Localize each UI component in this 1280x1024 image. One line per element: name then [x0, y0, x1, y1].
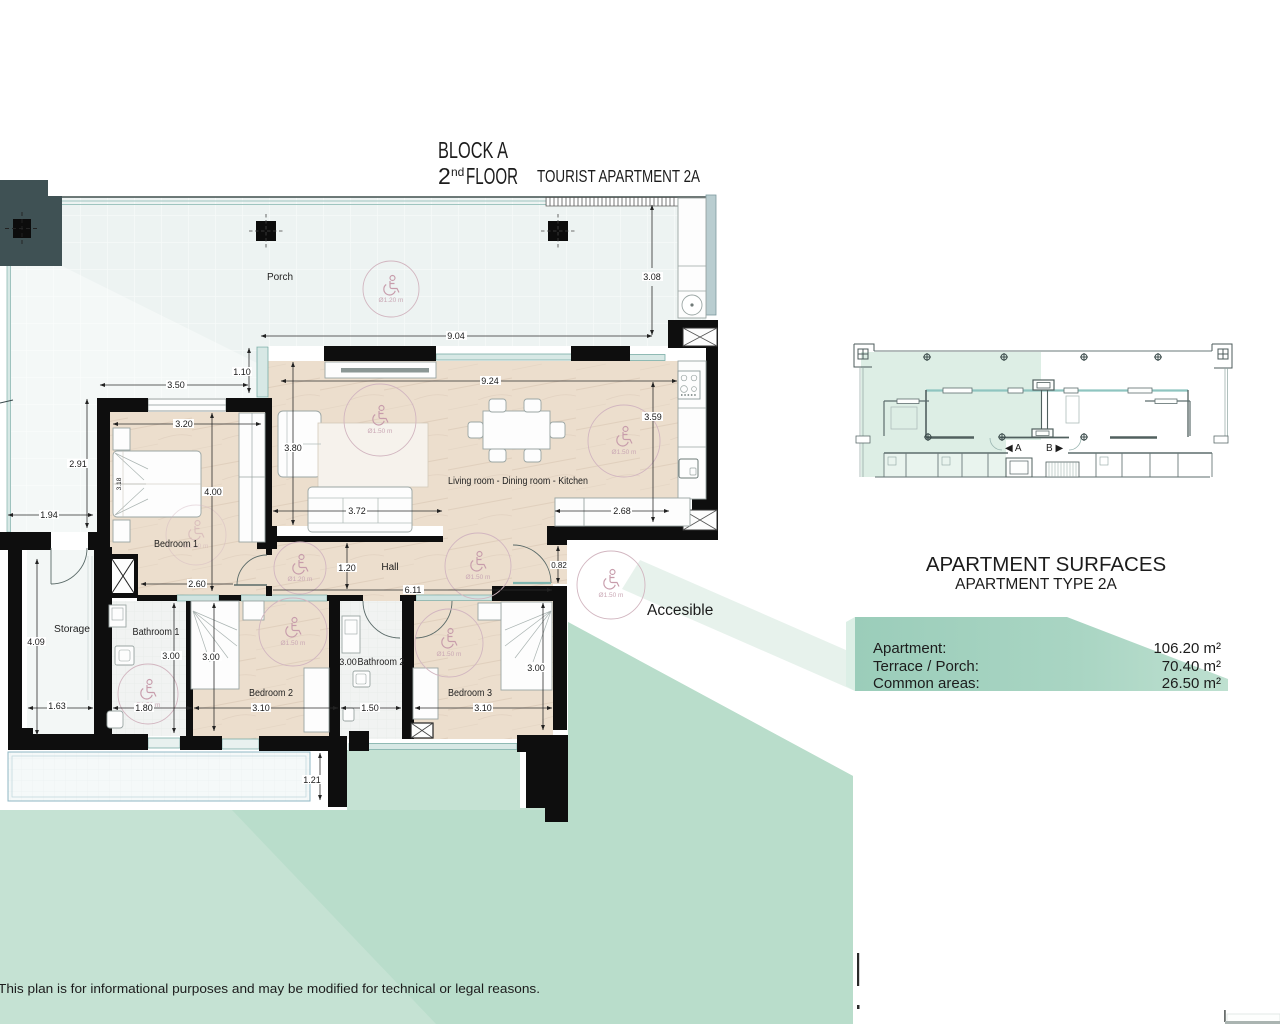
- svg-text:3.08: 3.08: [643, 272, 661, 282]
- svg-text:Bedroom 2: Bedroom 2: [249, 688, 293, 699]
- svg-text:1.20: 1.20: [338, 563, 356, 573]
- svg-text:B ▶: B ▶: [1046, 443, 1063, 454]
- svg-text:1.63: 1.63: [48, 701, 66, 711]
- svg-text:Storage: Storage: [54, 624, 90, 635]
- svg-text:3.18: 3.18: [116, 477, 123, 490]
- svg-text:1.94: 1.94: [40, 510, 58, 520]
- svg-text:Ø1.50 m: Ø1.50 m: [281, 640, 306, 647]
- svg-text:3.00: 3.00: [527, 663, 545, 673]
- svg-text:Accesible: Accesible: [647, 602, 713, 619]
- svg-text:3.10: 3.10: [252, 703, 270, 713]
- svg-text:APARTMENT TYPE 2A: APARTMENT TYPE 2A: [955, 576, 1117, 593]
- svg-text:1.10: 1.10: [233, 367, 251, 377]
- svg-text:9.04: 9.04: [447, 331, 465, 341]
- svg-text:Bathroom 2: Bathroom 2: [358, 657, 405, 668]
- svg-text:3.72: 3.72: [348, 506, 366, 516]
- svg-text:26.50 m²: 26.50 m²: [1162, 675, 1221, 692]
- svg-text:3.50: 3.50: [167, 380, 185, 390]
- svg-text:This plan is for informational: This plan is for informational purposes …: [0, 981, 540, 996]
- svg-text:1.80: 1.80: [135, 703, 153, 713]
- svg-text:70.40 m²: 70.40 m²: [1162, 658, 1221, 675]
- svg-text:Living room - Dining room - Ki: Living room - Dining room - Kitchen: [448, 476, 588, 487]
- svg-text:1.21: 1.21: [303, 775, 321, 785]
- svg-text:Ø1.50 m: Ø1.50 m: [368, 428, 393, 435]
- svg-text:◀ A: ◀ A: [1005, 443, 1022, 454]
- svg-text:2: 2: [438, 163, 451, 189]
- svg-text:3.20: 3.20: [175, 419, 193, 429]
- svg-text:Apartment:: Apartment:: [873, 640, 946, 657]
- svg-text:6.11: 6.11: [405, 585, 422, 595]
- svg-text:9.24: 9.24: [481, 376, 499, 386]
- svg-text:Ø1.50 m: Ø1.50 m: [437, 651, 462, 658]
- svg-text:Terrace / Porch:: Terrace / Porch:: [873, 658, 979, 675]
- svg-text:2.68: 2.68: [613, 506, 631, 516]
- svg-text:3.00: 3.00: [202, 652, 220, 662]
- svg-text:3.10: 3.10: [474, 703, 492, 713]
- svg-text:3.80: 3.80: [284, 443, 302, 453]
- svg-text:Bedroom 1: Bedroom 1: [154, 539, 198, 550]
- svg-text:FLOOR: FLOOR: [466, 163, 518, 189]
- svg-text:Common areas:: Common areas:: [873, 675, 980, 692]
- svg-text:Bedroom 3: Bedroom 3: [448, 688, 492, 699]
- svg-text:Ø1.20 m: Ø1.20 m: [379, 297, 404, 304]
- svg-text:Ø1.50 m: Ø1.50 m: [466, 574, 491, 581]
- svg-text:3.59: 3.59: [644, 412, 662, 422]
- svg-text:Porch: Porch: [267, 272, 293, 283]
- svg-text:Ø1.50 m: Ø1.50 m: [612, 449, 637, 456]
- svg-text:3.00: 3.00: [339, 657, 357, 667]
- svg-text:Ø1.50 m: Ø1.50 m: [599, 592, 624, 599]
- svg-text:2.91: 2.91: [69, 459, 87, 469]
- svg-text:nd: nd: [451, 165, 464, 179]
- svg-text:4.09: 4.09: [27, 637, 45, 647]
- svg-text:Ø1.20 m: Ø1.20 m: [288, 576, 313, 583]
- svg-text:1.50: 1.50: [361, 703, 379, 713]
- svg-text:Hall: Hall: [381, 562, 398, 573]
- svg-text:2.60: 2.60: [188, 579, 206, 589]
- svg-text:Bathroom 1: Bathroom 1: [133, 627, 180, 638]
- svg-text:BLOCK A: BLOCK A: [438, 137, 508, 163]
- svg-text:0.82: 0.82: [551, 561, 567, 570]
- svg-text:4.00: 4.00: [204, 487, 222, 497]
- svg-text:TOURIST APARTMENT 2A: TOURIST APARTMENT 2A: [537, 166, 700, 186]
- svg-text:106.20 m²: 106.20 m²: [1153, 640, 1221, 657]
- svg-text:3.00: 3.00: [162, 651, 180, 661]
- svg-text:APARTMENT SURFACES: APARTMENT SURFACES: [926, 553, 1166, 576]
